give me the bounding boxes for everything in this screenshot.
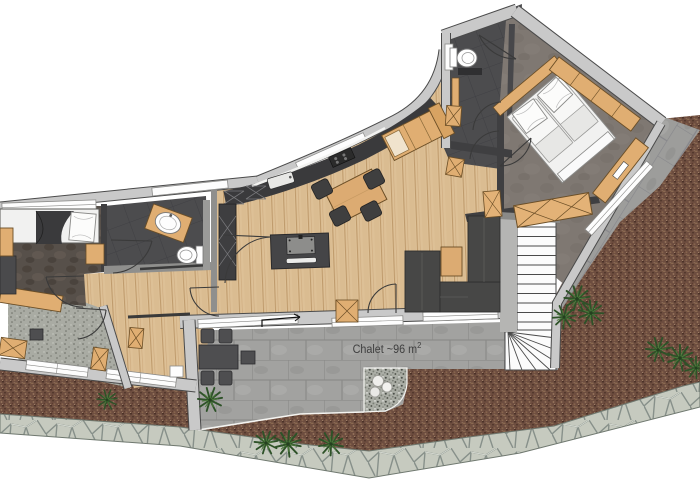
svg-text:Chalet ~96 m2: Chalet ~96 m2 — [353, 341, 422, 357]
